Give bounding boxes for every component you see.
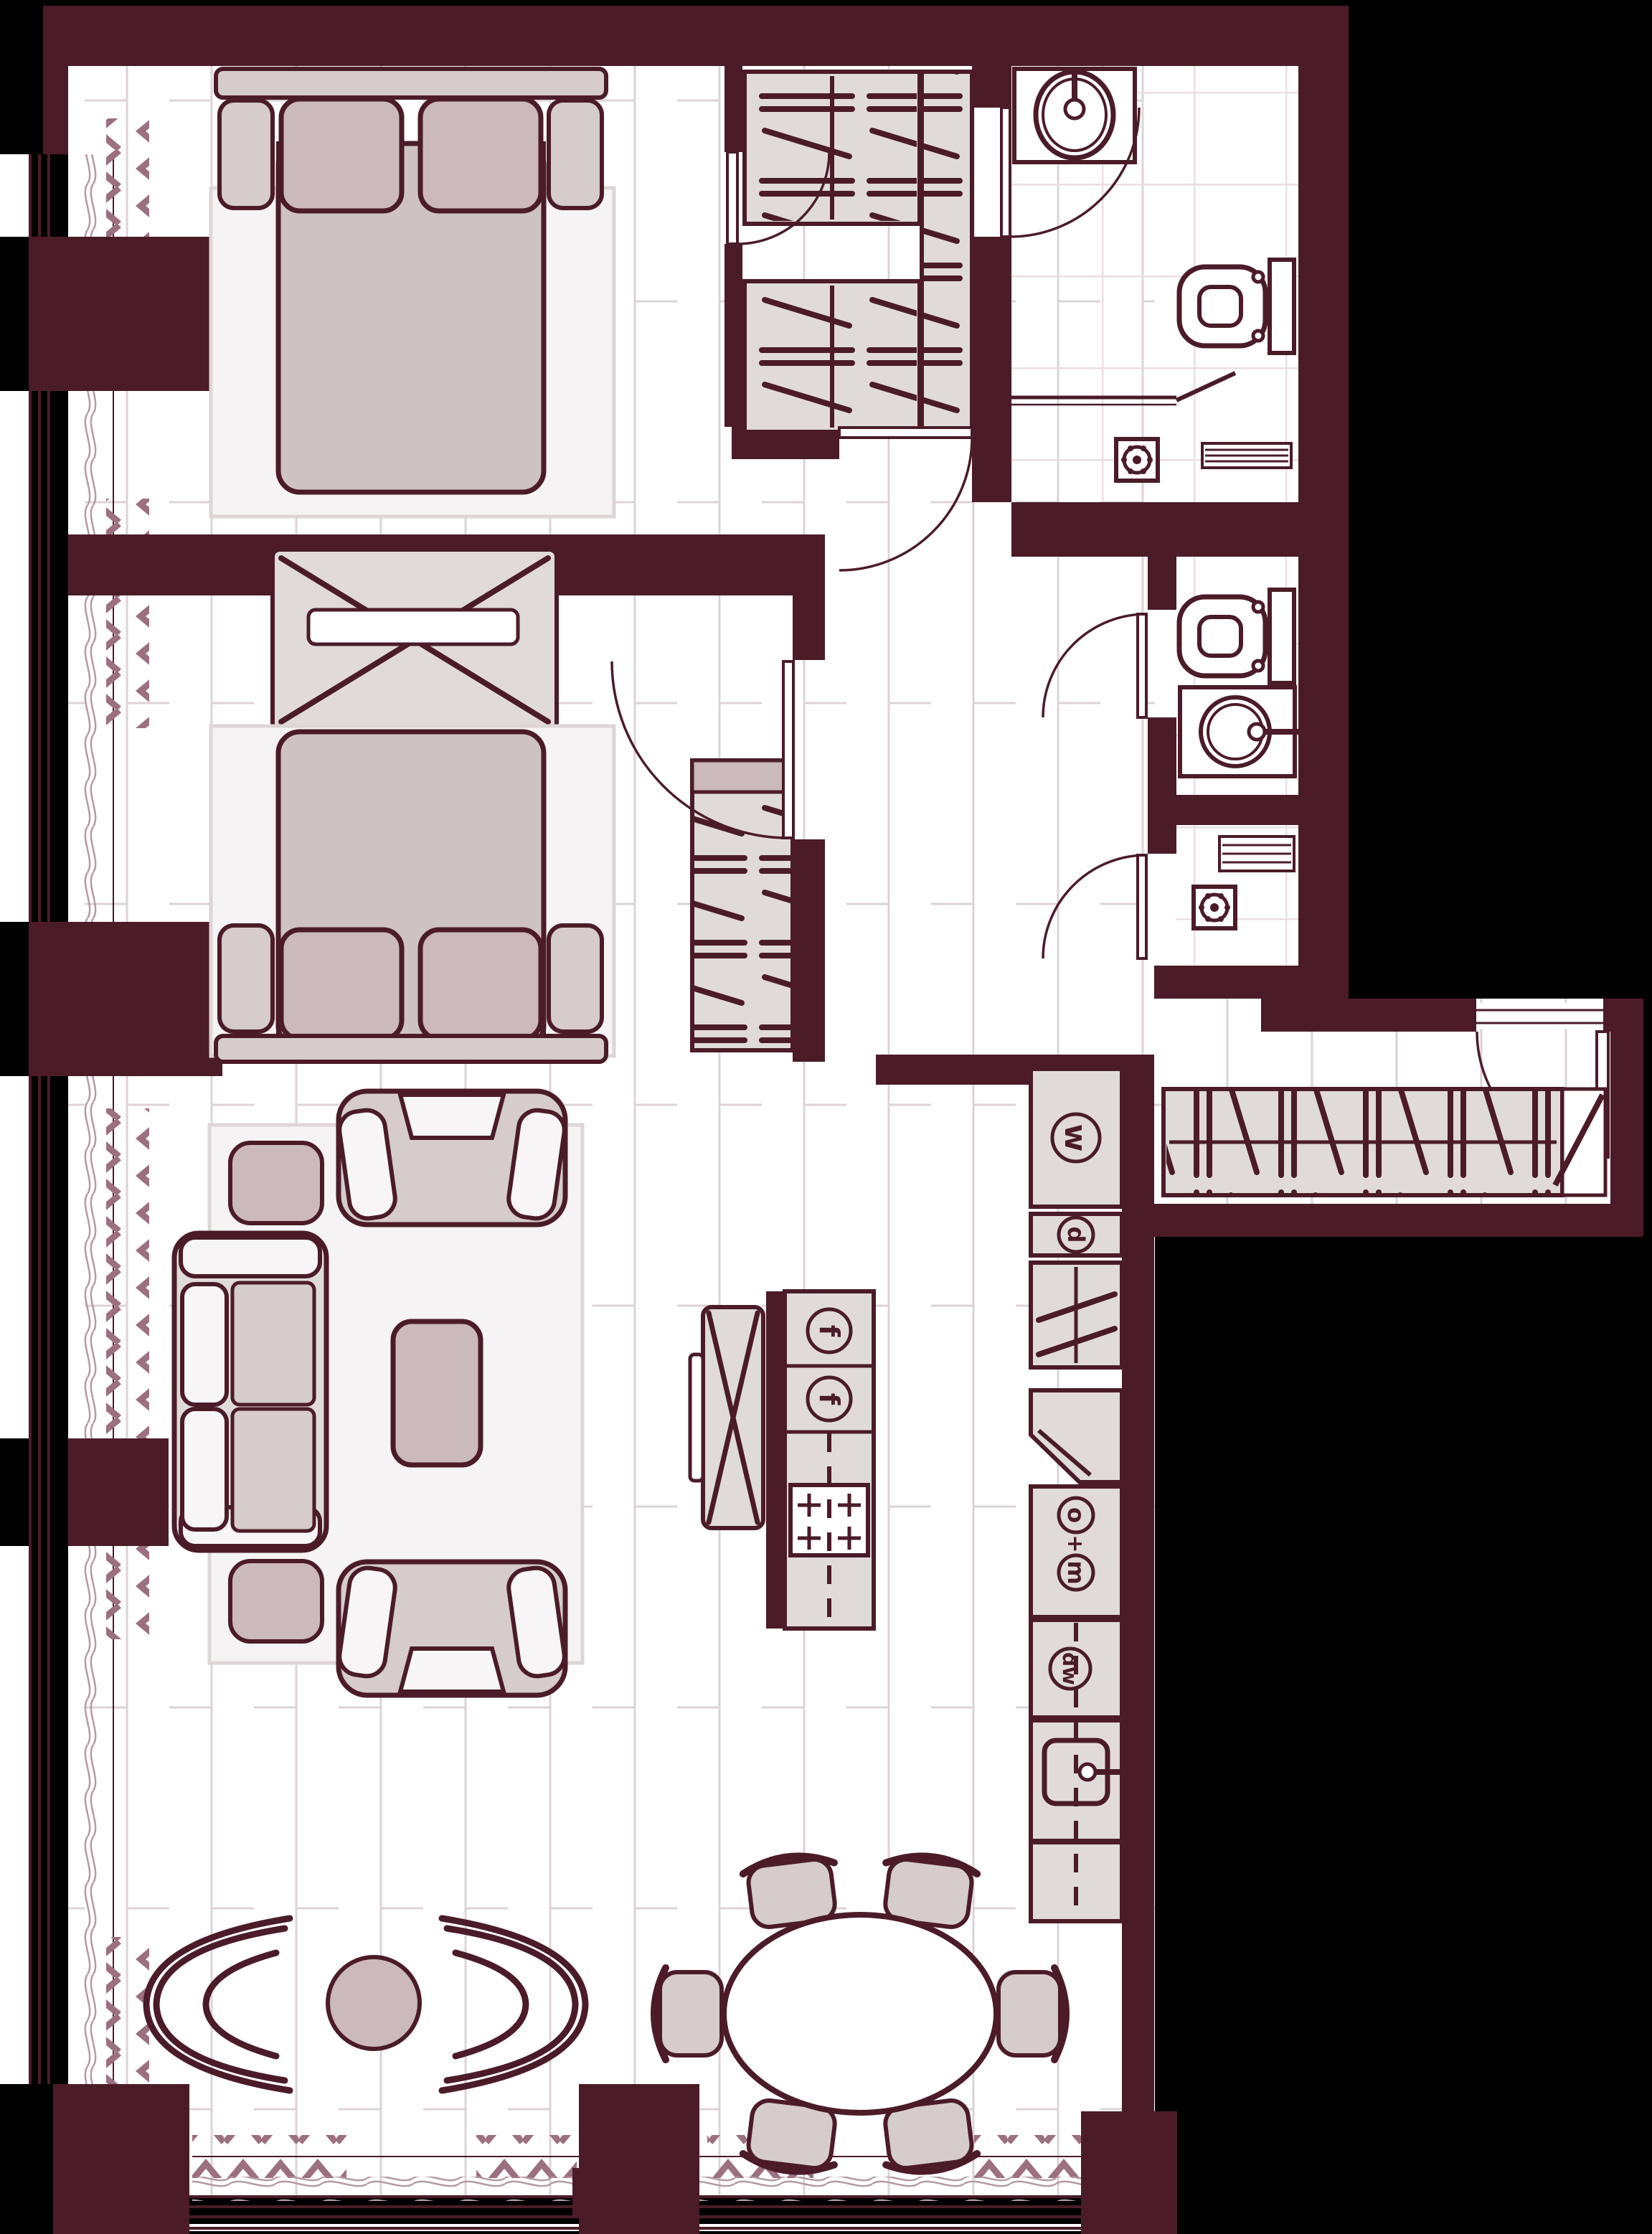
bedroom2-shelf-unit-shelves bbox=[694, 792, 790, 1048]
closet-bedroom1-door-leaf bbox=[727, 152, 737, 244]
wall-closet-west-b bbox=[724, 244, 742, 427]
bed2-headboard bbox=[216, 1036, 606, 1062]
pier-south-3 bbox=[1081, 2111, 1177, 2234]
window-reveal-west-2 bbox=[0, 391, 29, 922]
sofa-back-cushion-2 bbox=[182, 1409, 227, 1530]
round-side-table bbox=[328, 1957, 420, 2049]
laundry-door-leaf bbox=[1138, 855, 1146, 958]
wall-laundry-divider bbox=[1176, 795, 1349, 825]
living-room bbox=[174, 1091, 582, 1695]
wall-bath1-west-b bbox=[972, 237, 1011, 502]
sheer-curtain-west-2 bbox=[80, 391, 100, 922]
bath1-toilet bbox=[1179, 260, 1294, 353]
wall-north bbox=[43, 6, 1349, 66]
bed1-nightstand-left bbox=[220, 100, 273, 208]
wall-hall-north-stub bbox=[1603, 999, 1643, 1032]
coffee-table bbox=[393, 1321, 481, 1465]
sheer-curtain-west-3 bbox=[80, 1076, 100, 1438]
bath1-shower-drain bbox=[1116, 439, 1158, 481]
window-glazing-west bbox=[30, 154, 49, 2084]
balcony-door-handle bbox=[572, 2168, 580, 2215]
pier-west-1 bbox=[29, 237, 226, 391]
bath2-door-leaf bbox=[1138, 614, 1146, 717]
sheer-curtain-west-1 bbox=[80, 154, 100, 237]
microwave-label: m bbox=[1062, 1560, 1090, 1584]
dining-table bbox=[724, 1915, 996, 2113]
wall-hall-north bbox=[1261, 999, 1476, 1032]
bed1-pillow-left bbox=[281, 99, 402, 211]
bed2-pillow-left bbox=[281, 930, 402, 1039]
wall-closet-west-a bbox=[724, 66, 742, 152]
wall-bedroom2-east-a bbox=[793, 595, 825, 660]
wall-laundry-south bbox=[1154, 966, 1349, 999]
dishwasher-label: dw bbox=[1058, 1652, 1082, 1685]
bed1-headboard bbox=[216, 69, 606, 98]
bedroom2-door-leaf bbox=[783, 661, 793, 838]
window-reveal-west-4 bbox=[0, 1546, 29, 2084]
bed1-nightstand-right bbox=[549, 100, 602, 208]
dining-chair-3 bbox=[654, 1968, 722, 2060]
kitchen-wall-run: w d o + m dw bbox=[1031, 1069, 1122, 1921]
island-back-panel bbox=[766, 1291, 785, 1629]
sofa bbox=[174, 1233, 326, 1550]
window-reveal-west-3 bbox=[0, 1076, 29, 1438]
curtain-west-3 bbox=[106, 1108, 149, 1639]
window-reveal-west-1 bbox=[0, 154, 29, 237]
sofa-seat-1 bbox=[232, 1283, 314, 1405]
wall-west-top bbox=[43, 66, 68, 154]
sofa-arm-top bbox=[181, 1238, 320, 1276]
wall-bath2-west-a bbox=[1148, 557, 1176, 610]
sofa-seat-2 bbox=[232, 1409, 314, 1531]
pouf-north bbox=[230, 1143, 322, 1223]
closet-shelf-column-shelves bbox=[924, 74, 970, 430]
wall-bath-divider bbox=[1011, 502, 1349, 557]
dining-chair-4 bbox=[999, 1968, 1066, 2060]
pier-south-2 bbox=[579, 2084, 699, 2234]
apartment-floor-plan: f f w d o + m dw bbox=[0, 0, 1652, 2234]
wall-bath2-west-b bbox=[1148, 717, 1176, 854]
bath1-faucet-knob bbox=[1065, 100, 1084, 118]
fridge-top-label: f bbox=[813, 1325, 845, 1337]
fridge-bottom-label: f bbox=[813, 1393, 845, 1405]
bed1-pillow-right bbox=[420, 99, 541, 211]
bedroom2-shelf-unit-cap bbox=[692, 760, 793, 792]
pouf-south bbox=[230, 1561, 322, 1641]
oven-label: o bbox=[1062, 1507, 1090, 1523]
wall-bedroom2-east-b bbox=[793, 839, 825, 1062]
armchair-south bbox=[337, 1562, 567, 1695]
dryer-label: d bbox=[1062, 1227, 1090, 1243]
wall-kitchen-east bbox=[1122, 1085, 1154, 2111]
entry-threshold bbox=[1476, 1003, 1603, 1029]
sheer-curtain-west-4 bbox=[80, 1546, 100, 2084]
bed2-nightstand-right bbox=[549, 925, 602, 1032]
laundry-shower-drain bbox=[1194, 887, 1235, 928]
armchair-north bbox=[337, 1091, 567, 1225]
bed2-pillow-right bbox=[420, 930, 541, 1039]
bath2-toilet bbox=[1179, 590, 1294, 683]
wall-hall-east bbox=[1610, 1032, 1643, 1204]
wall-hall-south bbox=[1127, 1204, 1643, 1237]
kitchen-faucet-knob bbox=[1080, 1764, 1095, 1780]
tv-screen bbox=[690, 1354, 703, 1481]
bath2-faucet-knob bbox=[1249, 724, 1265, 740]
pier-south-1 bbox=[53, 2084, 189, 2234]
floor-plan-page: f f w d o + m dw bbox=[0, 0, 1652, 2234]
curtain-west-4 bbox=[106, 1937, 149, 2088]
bedroom2-tv bbox=[308, 610, 518, 644]
bed2-nightstand-left bbox=[220, 925, 273, 1032]
wall-bath1-west-a bbox=[972, 66, 1011, 108]
pier-west-3 bbox=[68, 1438, 169, 1546]
curtain-west-2 bbox=[106, 499, 149, 728]
bath1-door-leaf bbox=[1001, 108, 1010, 237]
closet-door-leaf bbox=[839, 428, 972, 438]
plus-label: + bbox=[1062, 1535, 1087, 1552]
washer-label: w bbox=[1058, 1124, 1093, 1152]
sofa-back-cushion-1 bbox=[182, 1284, 227, 1405]
pier-west-2 bbox=[29, 922, 222, 1076]
